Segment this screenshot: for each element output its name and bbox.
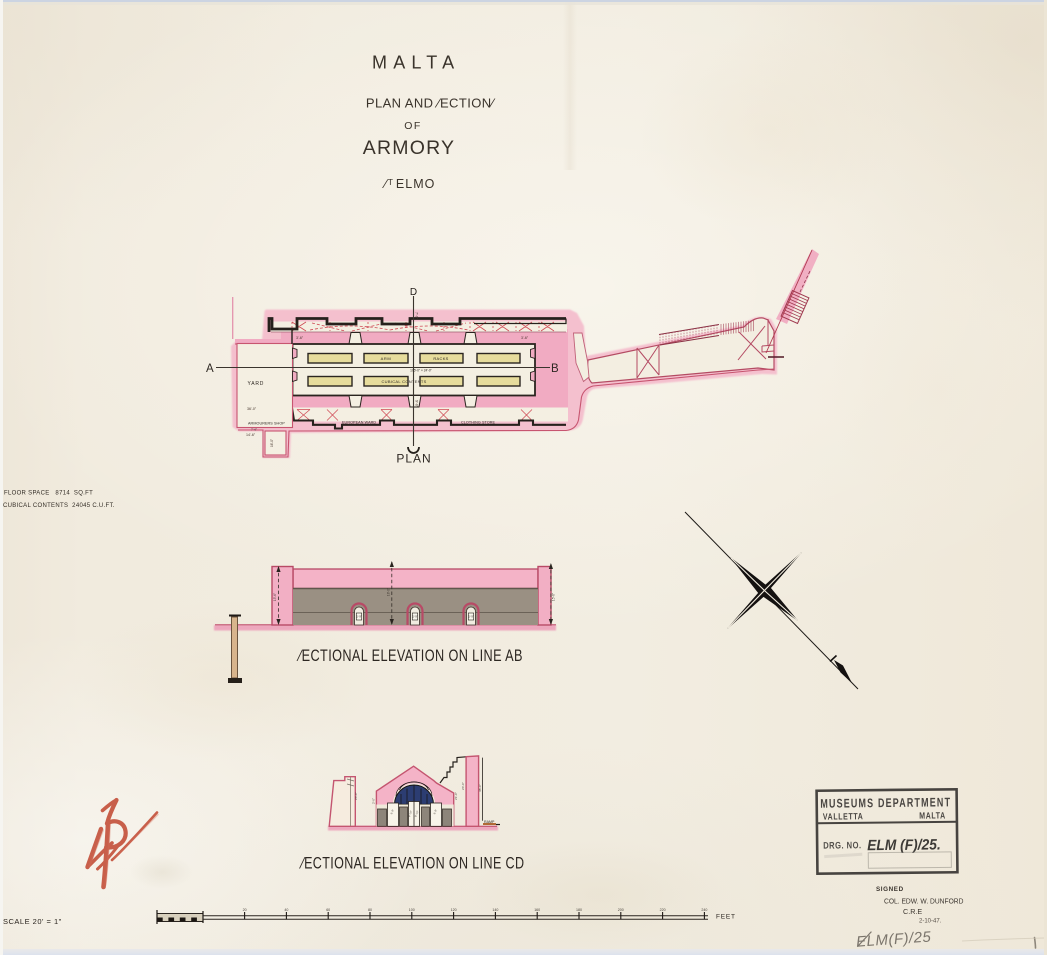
- svg-text:PLAN: PLAN: [396, 452, 431, 466]
- svg-text:MALTA: MALTA: [372, 53, 460, 73]
- svg-text:14'-6": 14'-6": [246, 433, 256, 437]
- svg-text:CLOTHING STORE: CLOTHING STORE: [461, 421, 496, 425]
- svg-text:9'-0": 9'-0": [415, 400, 419, 408]
- svg-text:RACKS: RACKS: [433, 356, 448, 361]
- svg-text:1'-9": 1'-9": [356, 615, 362, 619]
- svg-text:3'-6": 3'-6": [296, 336, 304, 340]
- svg-text:VALLETTA: VALLETTA: [823, 811, 864, 821]
- svg-text:D: D: [410, 287, 417, 298]
- svg-text:∕TELMO: ∕TELMO: [382, 177, 436, 191]
- svg-text:2-10-47.: 2-10-47.: [919, 919, 942, 925]
- svg-text:CUBICAL CONTENTS: CUBICAL CONTENTS: [381, 379, 426, 384]
- svg-text:180: 180: [576, 908, 582, 912]
- svg-text:140: 140: [492, 908, 498, 912]
- svg-text:ARMOURERS SHOP: ARMOURERS SHOP: [248, 421, 285, 425]
- svg-text:24'-0": 24'-0": [354, 792, 358, 800]
- svg-text:80: 80: [368, 908, 372, 912]
- svg-text:15'-6": 15'-6": [552, 593, 556, 601]
- svg-text:∕ECTIONAL ELEVATION ON LINE CD: ∕ECTIONAL ELEVATION ON LINE CD: [299, 855, 524, 873]
- svg-text:PLAN AND ∕ECTION∕: PLAN AND ∕ECTION∕: [366, 96, 496, 111]
- svg-text:SIGNED: SIGNED: [876, 886, 904, 893]
- svg-text:7'-0": 7'-0": [415, 312, 419, 320]
- svg-text:ARM: ARM: [381, 356, 392, 361]
- svg-text:CUBICAL CONTENTS 24045 C.U.FT: CUBICAL CONTENTS 24045 C.U.FT.: [3, 503, 115, 509]
- svg-text:18'-0": 18'-0": [387, 588, 391, 596]
- svg-text:16'-0": 16'-0": [270, 439, 274, 447]
- svg-text:200: 200: [618, 908, 624, 912]
- svg-text:SCALE 20' = 1": SCALE 20' = 1": [3, 917, 62, 926]
- svg-text:21'-0": 21'-0": [454, 792, 458, 800]
- svg-text:3'-6": 3'-6": [521, 336, 529, 340]
- svg-text:7'-6": 7'-6": [251, 428, 257, 432]
- svg-text:160: 160: [534, 908, 540, 912]
- svg-text:B: B: [551, 363, 559, 375]
- svg-text:60: 60: [326, 908, 330, 912]
- svg-text:COL. EDW. W. DUNFORD: COL. EDW. W. DUNFORD: [884, 898, 963, 905]
- svg-text:1'-9": 1'-9": [412, 615, 418, 619]
- svg-text:36'-0": 36'-0": [247, 407, 257, 411]
- svg-text:OF: OF: [404, 120, 422, 132]
- svg-text:DRG. NO.: DRG. NO.: [823, 839, 862, 850]
- svg-text:2'-0": 2'-0": [372, 798, 376, 804]
- svg-text:120: 120: [451, 908, 457, 912]
- svg-text:FEET: FEET: [716, 914, 736, 921]
- svg-text:MUSEUMS DEPARTMENT: MUSEUMS DEPARTMENT: [820, 796, 951, 811]
- svg-text:ELM(F)/25: ELM(F)/25: [856, 928, 933, 950]
- svg-text:220: 220: [660, 908, 666, 912]
- svg-text:1'-9": 1'-9": [468, 615, 474, 619]
- svg-text:YARD: YARD: [248, 381, 265, 387]
- svg-text:100: 100: [409, 908, 415, 912]
- svg-text:FLOOR SPACE 8714 SQ.FT: FLOOR SPACE 8714 SQ.FT: [4, 491, 93, 497]
- svg-text:∕ECTIONAL ELEVATION ON LINE AB: ∕ECTIONAL ELEVATION ON LINE AB: [297, 648, 523, 666]
- svg-text:ARMORY: ARMORY: [363, 137, 455, 159]
- svg-text:C.R.E: C.R.E: [903, 907, 922, 916]
- svg-text:MALTA: MALTA: [919, 811, 946, 821]
- svg-text:24'-0": 24'-0": [461, 782, 465, 790]
- svg-text:A: A: [206, 363, 214, 375]
- svg-text:35'-0": 35'-0": [478, 784, 482, 792]
- svg-text:EUROPEAN WARD: EUROPEAN WARD: [342, 421, 376, 425]
- svg-text:20: 20: [243, 908, 247, 912]
- svg-text:240: 240: [701, 908, 707, 912]
- svg-text:15'-6": 15'-6": [273, 593, 277, 601]
- svg-text:40: 40: [284, 908, 288, 912]
